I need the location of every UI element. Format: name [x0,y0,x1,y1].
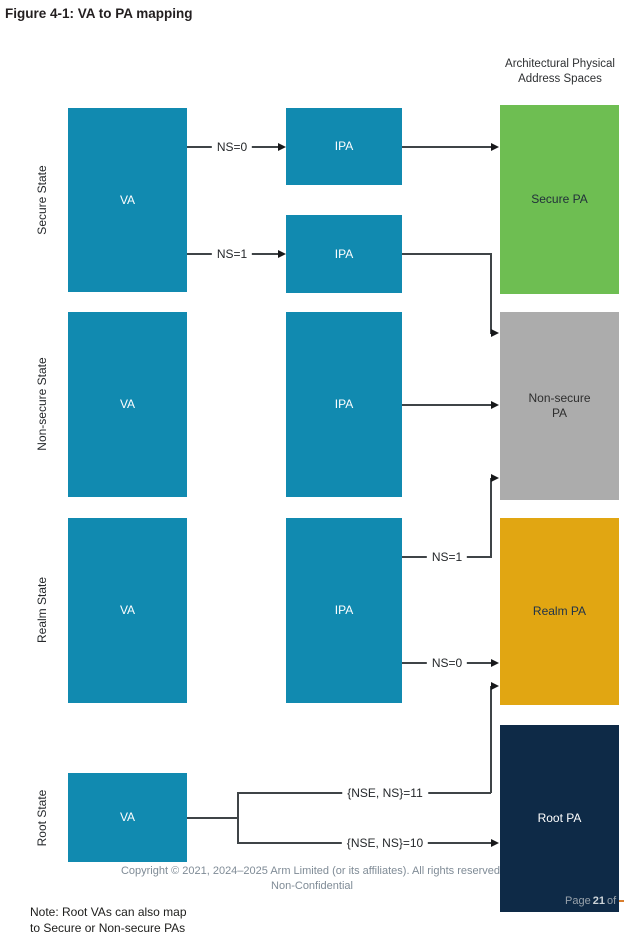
figure-title: Figure 4-1: VA to PA mapping [5,6,193,21]
figure-note: Note: Root VAs can also map to Secure or… [30,905,187,936]
pa-box-realm-label: Realm PA [533,604,586,619]
va-box-realm-label: VA [120,603,135,618]
connector-line [490,253,492,334]
va-box-secure-label: VA [120,193,135,208]
pa-box-root-label: Root PA [538,811,582,826]
page-number-footer: Page21of [565,895,624,907]
connector-line [237,792,239,844]
ipa-box-secure-ns1: IPA [286,215,402,293]
pa-box-nonsecure-label-line1: Non-secure [528,391,590,406]
va-box-nonsecure: VA [68,312,187,497]
arrow-head-icon [278,143,286,151]
arrow-label-realm-ns0: NS=0 [427,656,467,670]
arrow-head-icon [491,474,499,482]
ipa-box-secure-ns0-label: IPA [335,139,353,154]
arrow-label-root-nse-ns-11: {NSE, NS}=11 [342,786,428,800]
state-label-secure: Secure State [34,110,50,290]
ipa-box-secure-ns0: IPA [286,108,402,185]
document-page: Figure 4-1: VA to PA mapping Architectur… [0,0,624,941]
pa-box-secure: Secure PA [500,105,619,294]
pa-box-root: Root PA [500,725,619,912]
pa-box-nonsecure-label-line2: PA [528,406,590,421]
arrow-label-realm-ns1: NS=1 [427,550,467,564]
ipa-box-realm: IPA [286,518,402,703]
arrow-head-icon [278,250,286,258]
arrow-head-icon [491,401,499,409]
page-suffix: of [607,895,616,907]
connector-line [187,817,237,819]
arrow-head-icon [491,143,499,151]
ipa-box-nonsecure-label: IPA [335,397,353,412]
state-label-realm: Realm State [34,520,50,700]
connector-line [402,253,491,255]
arrow-label-root-nse-ns-10: {NSE, NS}=10 [342,836,428,850]
page-number: 21 [591,895,607,907]
pa-box-secure-label: Secure PA [531,192,587,207]
va-box-realm: VA [68,518,187,703]
pa-box-nonsecure-label: Non-secure PA [528,391,590,421]
pa-column-header: Architectural Physical Address Spaces [498,57,622,86]
arrow-label-secure-ns0: NS=0 [212,140,252,154]
va-box-secure: VA [68,108,187,292]
arrow-head-icon [491,659,499,667]
clipped-page-total-fragment [619,900,624,902]
va-box-nonsecure-label: VA [120,397,135,412]
page-prefix: Page [565,895,591,907]
ipa-box-secure-ns1-label: IPA [335,247,353,262]
state-label-nonsecure: Non-secure State [34,314,50,494]
connector-line [490,478,492,558]
va-box-root: VA [68,773,187,862]
connector-line [402,404,492,406]
arrow-label-secure-ns1: NS=1 [212,247,252,261]
pa-column-header-line2: Address Spaces [498,72,622,87]
state-label-root: Root State [34,728,50,908]
figure-note-line1: Note: Root VAs can also map [30,905,187,921]
ipa-box-realm-label: IPA [335,603,353,618]
pa-box-nonsecure: Non-secure PA [500,312,619,500]
figure-note-line2: to Secure or Non-secure PAs [30,921,187,937]
ipa-box-nonsecure: IPA [286,312,402,497]
pa-column-header-line1: Architectural Physical [498,57,622,72]
connector-line [402,146,492,148]
pa-box-realm: Realm PA [500,518,619,705]
arrow-head-icon [491,682,499,690]
arrow-head-icon [491,839,499,847]
va-box-root-label: VA [120,810,135,825]
connector-line [490,686,492,793]
arrow-head-icon [491,329,499,337]
